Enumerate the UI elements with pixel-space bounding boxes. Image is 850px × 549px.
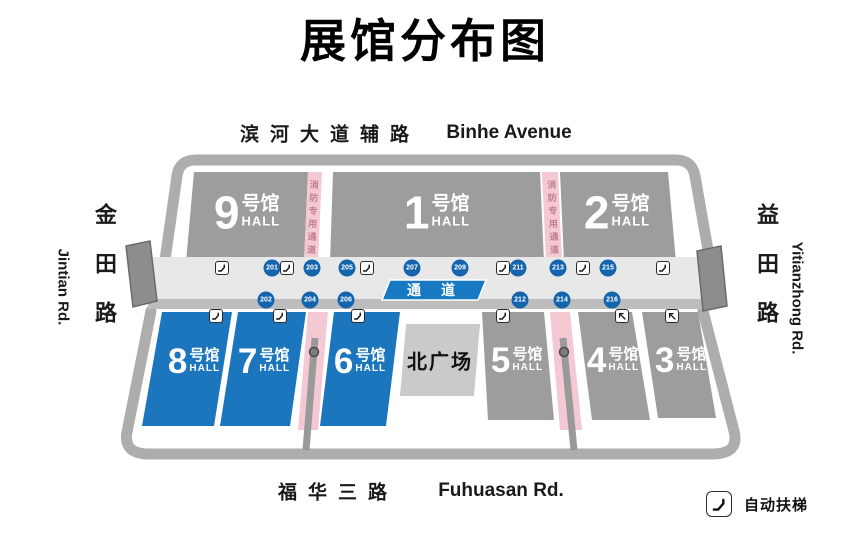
escalator-icon	[576, 261, 590, 275]
hall-1-label: 1 号馆HALL	[404, 193, 470, 232]
pole-cap-5-4	[560, 348, 569, 357]
corridor-banner-label: 通 道	[407, 280, 463, 300]
escalator-icon	[273, 309, 287, 323]
road-label-left-zh: 金田路	[88, 203, 120, 350]
hall-5-number: 5	[491, 346, 510, 376]
hall-6-label: 6 号馆HALL	[334, 347, 386, 377]
corridor-left-cap	[126, 241, 157, 307]
hall-3-label: 3 号馆HALL	[655, 346, 707, 376]
plaza-label: 北广场	[407, 346, 473, 375]
hall-1-number: 1	[404, 193, 430, 232]
escalator-icon	[496, 261, 510, 275]
pole-cap-7-6	[310, 348, 319, 357]
gate-203: 203	[304, 260, 321, 277]
hall-4-number: 4	[587, 346, 606, 376]
road-label-bottom-en: Fuhuasan Rd.	[438, 480, 564, 502]
arrow-up-left-icon	[665, 309, 679, 323]
gate-215: 215	[600, 260, 617, 277]
gate-204: 204	[302, 292, 319, 309]
page-title: 展馆分布图	[300, 5, 550, 71]
hall-4-label: 4 号馆HALL	[587, 346, 639, 376]
hall-9-number: 9	[214, 193, 240, 232]
road-label-top-en: Binhe Avenue	[446, 122, 571, 144]
gate-206: 206	[338, 292, 355, 309]
corridor-right-cap	[697, 246, 727, 311]
hall-5-label: 5 号馆HALL	[491, 346, 543, 376]
hall-2-number: 2	[584, 193, 610, 232]
gate-202: 202	[258, 292, 275, 309]
hall-7-number: 7	[238, 347, 257, 377]
road-label-right-en: Yitianzhong Rd.	[789, 242, 806, 355]
hall-2-label: 2 号馆HALL	[584, 193, 650, 232]
exhibition-map: 展馆分布图 滨河大道辅路 Binhe Avenue 福华三路 Fuhuasan …	[0, 0, 850, 549]
gate-216: 216	[604, 292, 621, 309]
hall-9-label: 9 号馆HALL	[214, 193, 280, 232]
arrow-up-left-icon	[615, 309, 629, 323]
escalator-icon	[351, 309, 365, 323]
road-label-right-zh: 益田路	[750, 203, 782, 350]
escalator-icon	[706, 491, 732, 517]
escalator-icon	[496, 309, 510, 323]
legend-escalator-label: 自动扶梯	[744, 494, 808, 515]
hall-6-number: 6	[334, 347, 353, 377]
road-label-left-en: Jintian Rd.	[55, 249, 72, 326]
hall-3-number: 3	[655, 346, 674, 376]
escalator-icon	[656, 261, 670, 275]
road-label-bottom-zh: 福华三路	[278, 478, 398, 505]
gate-212: 212	[512, 292, 529, 309]
escalator-icon	[280, 261, 294, 275]
gate-214: 214	[554, 292, 571, 309]
hall-7-label: 7 号馆HALL	[238, 347, 290, 377]
gate-201: 201	[264, 260, 281, 277]
gate-207: 207	[404, 260, 421, 277]
gate-205: 205	[339, 260, 356, 277]
hall-8-label: 8 号馆HALL	[168, 347, 220, 377]
legend: 自动扶梯	[706, 491, 808, 517]
escalator-icon	[360, 261, 374, 275]
hall-8-number: 8	[168, 347, 187, 377]
map-shapes	[0, 0, 850, 549]
gate-213: 213	[550, 260, 567, 277]
road-label-top-zh: 滨河大道辅路	[240, 120, 420, 147]
escalator-icon	[209, 309, 223, 323]
escalator-icon	[215, 261, 229, 275]
gate-211: 211	[510, 260, 527, 277]
gate-209: 209	[452, 260, 469, 277]
